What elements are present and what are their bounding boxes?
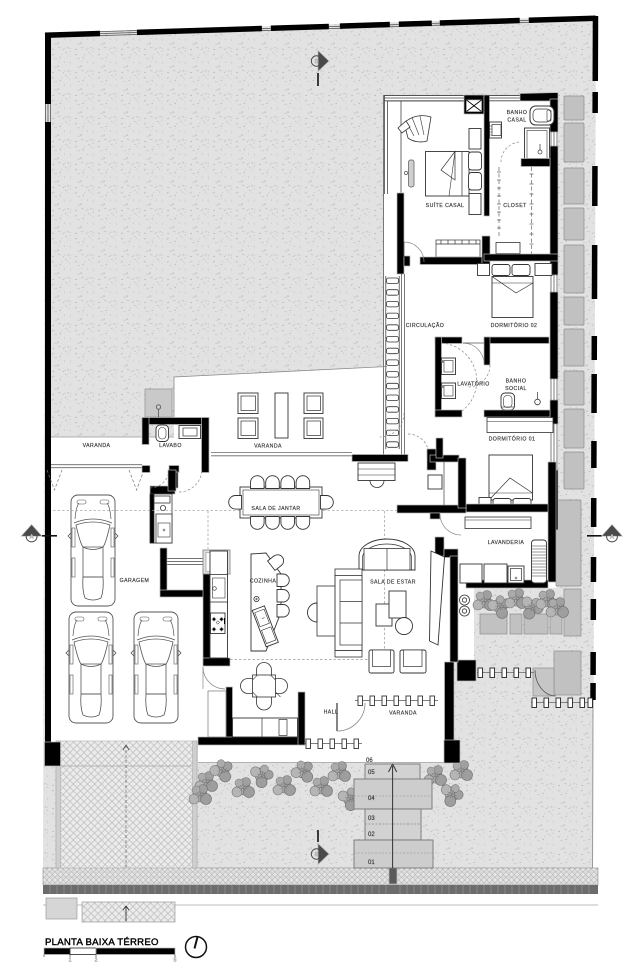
svg-text:SOCIAL: SOCIAL bbox=[505, 386, 527, 392]
svg-text:HALL: HALL bbox=[324, 710, 339, 716]
svg-text:LAVATÓRIO: LAVATÓRIO bbox=[457, 381, 490, 388]
svg-text:CASAL: CASAL bbox=[507, 118, 526, 124]
svg-text:04: 04 bbox=[368, 796, 375, 802]
svg-text:01: 01 bbox=[368, 860, 375, 866]
svg-text:LAVABO: LAVABO bbox=[159, 443, 182, 449]
svg-text:COZINHA: COZINHA bbox=[250, 579, 277, 585]
svg-text:A: A bbox=[30, 535, 34, 541]
svg-text:BANHO: BANHO bbox=[506, 379, 527, 385]
svg-text:CLOSET: CLOSET bbox=[503, 203, 527, 209]
svg-text:VARANDA: VARANDA bbox=[83, 443, 111, 449]
svg-text:03: 03 bbox=[368, 816, 375, 822]
svg-text:BANHO: BANHO bbox=[507, 110, 528, 116]
svg-text:LAVANDERIA: LAVANDERIA bbox=[488, 540, 525, 546]
svg-text:02: 02 bbox=[368, 832, 375, 838]
svg-text:DORMITÓRIO 02: DORMITÓRIO 02 bbox=[491, 322, 538, 329]
svg-text:PLANTA BAIXA TÉRREO: PLANTA BAIXA TÉRREO bbox=[45, 937, 159, 948]
svg-text:SALA DE JANTAR: SALA DE JANTAR bbox=[251, 506, 300, 512]
svg-text:2: 2 bbox=[95, 958, 98, 964]
svg-text:1: 1 bbox=[69, 958, 72, 964]
svg-text:SALA DE ESTAR: SALA DE ESTAR bbox=[370, 580, 416, 586]
svg-text:CIRCULAÇÃO: CIRCULAÇÃO bbox=[406, 322, 445, 329]
svg-text:GARAGEM: GARAGEM bbox=[120, 578, 150, 584]
svg-text:A: A bbox=[610, 535, 614, 541]
svg-text:VARANDA: VARANDA bbox=[389, 711, 417, 717]
svg-text:06: 06 bbox=[366, 758, 373, 764]
svg-text:VARANDA: VARANDA bbox=[254, 444, 282, 450]
svg-text:SUÍTE CASAL: SUÍTE CASAL bbox=[426, 202, 465, 209]
svg-text:B: B bbox=[315, 852, 319, 858]
svg-text:05: 05 bbox=[368, 770, 375, 776]
svg-text:B: B bbox=[315, 59, 319, 65]
svg-text:5: 5 bbox=[174, 958, 177, 964]
svg-text:DORMITÓRIO 01: DORMITÓRIO 01 bbox=[489, 436, 536, 443]
